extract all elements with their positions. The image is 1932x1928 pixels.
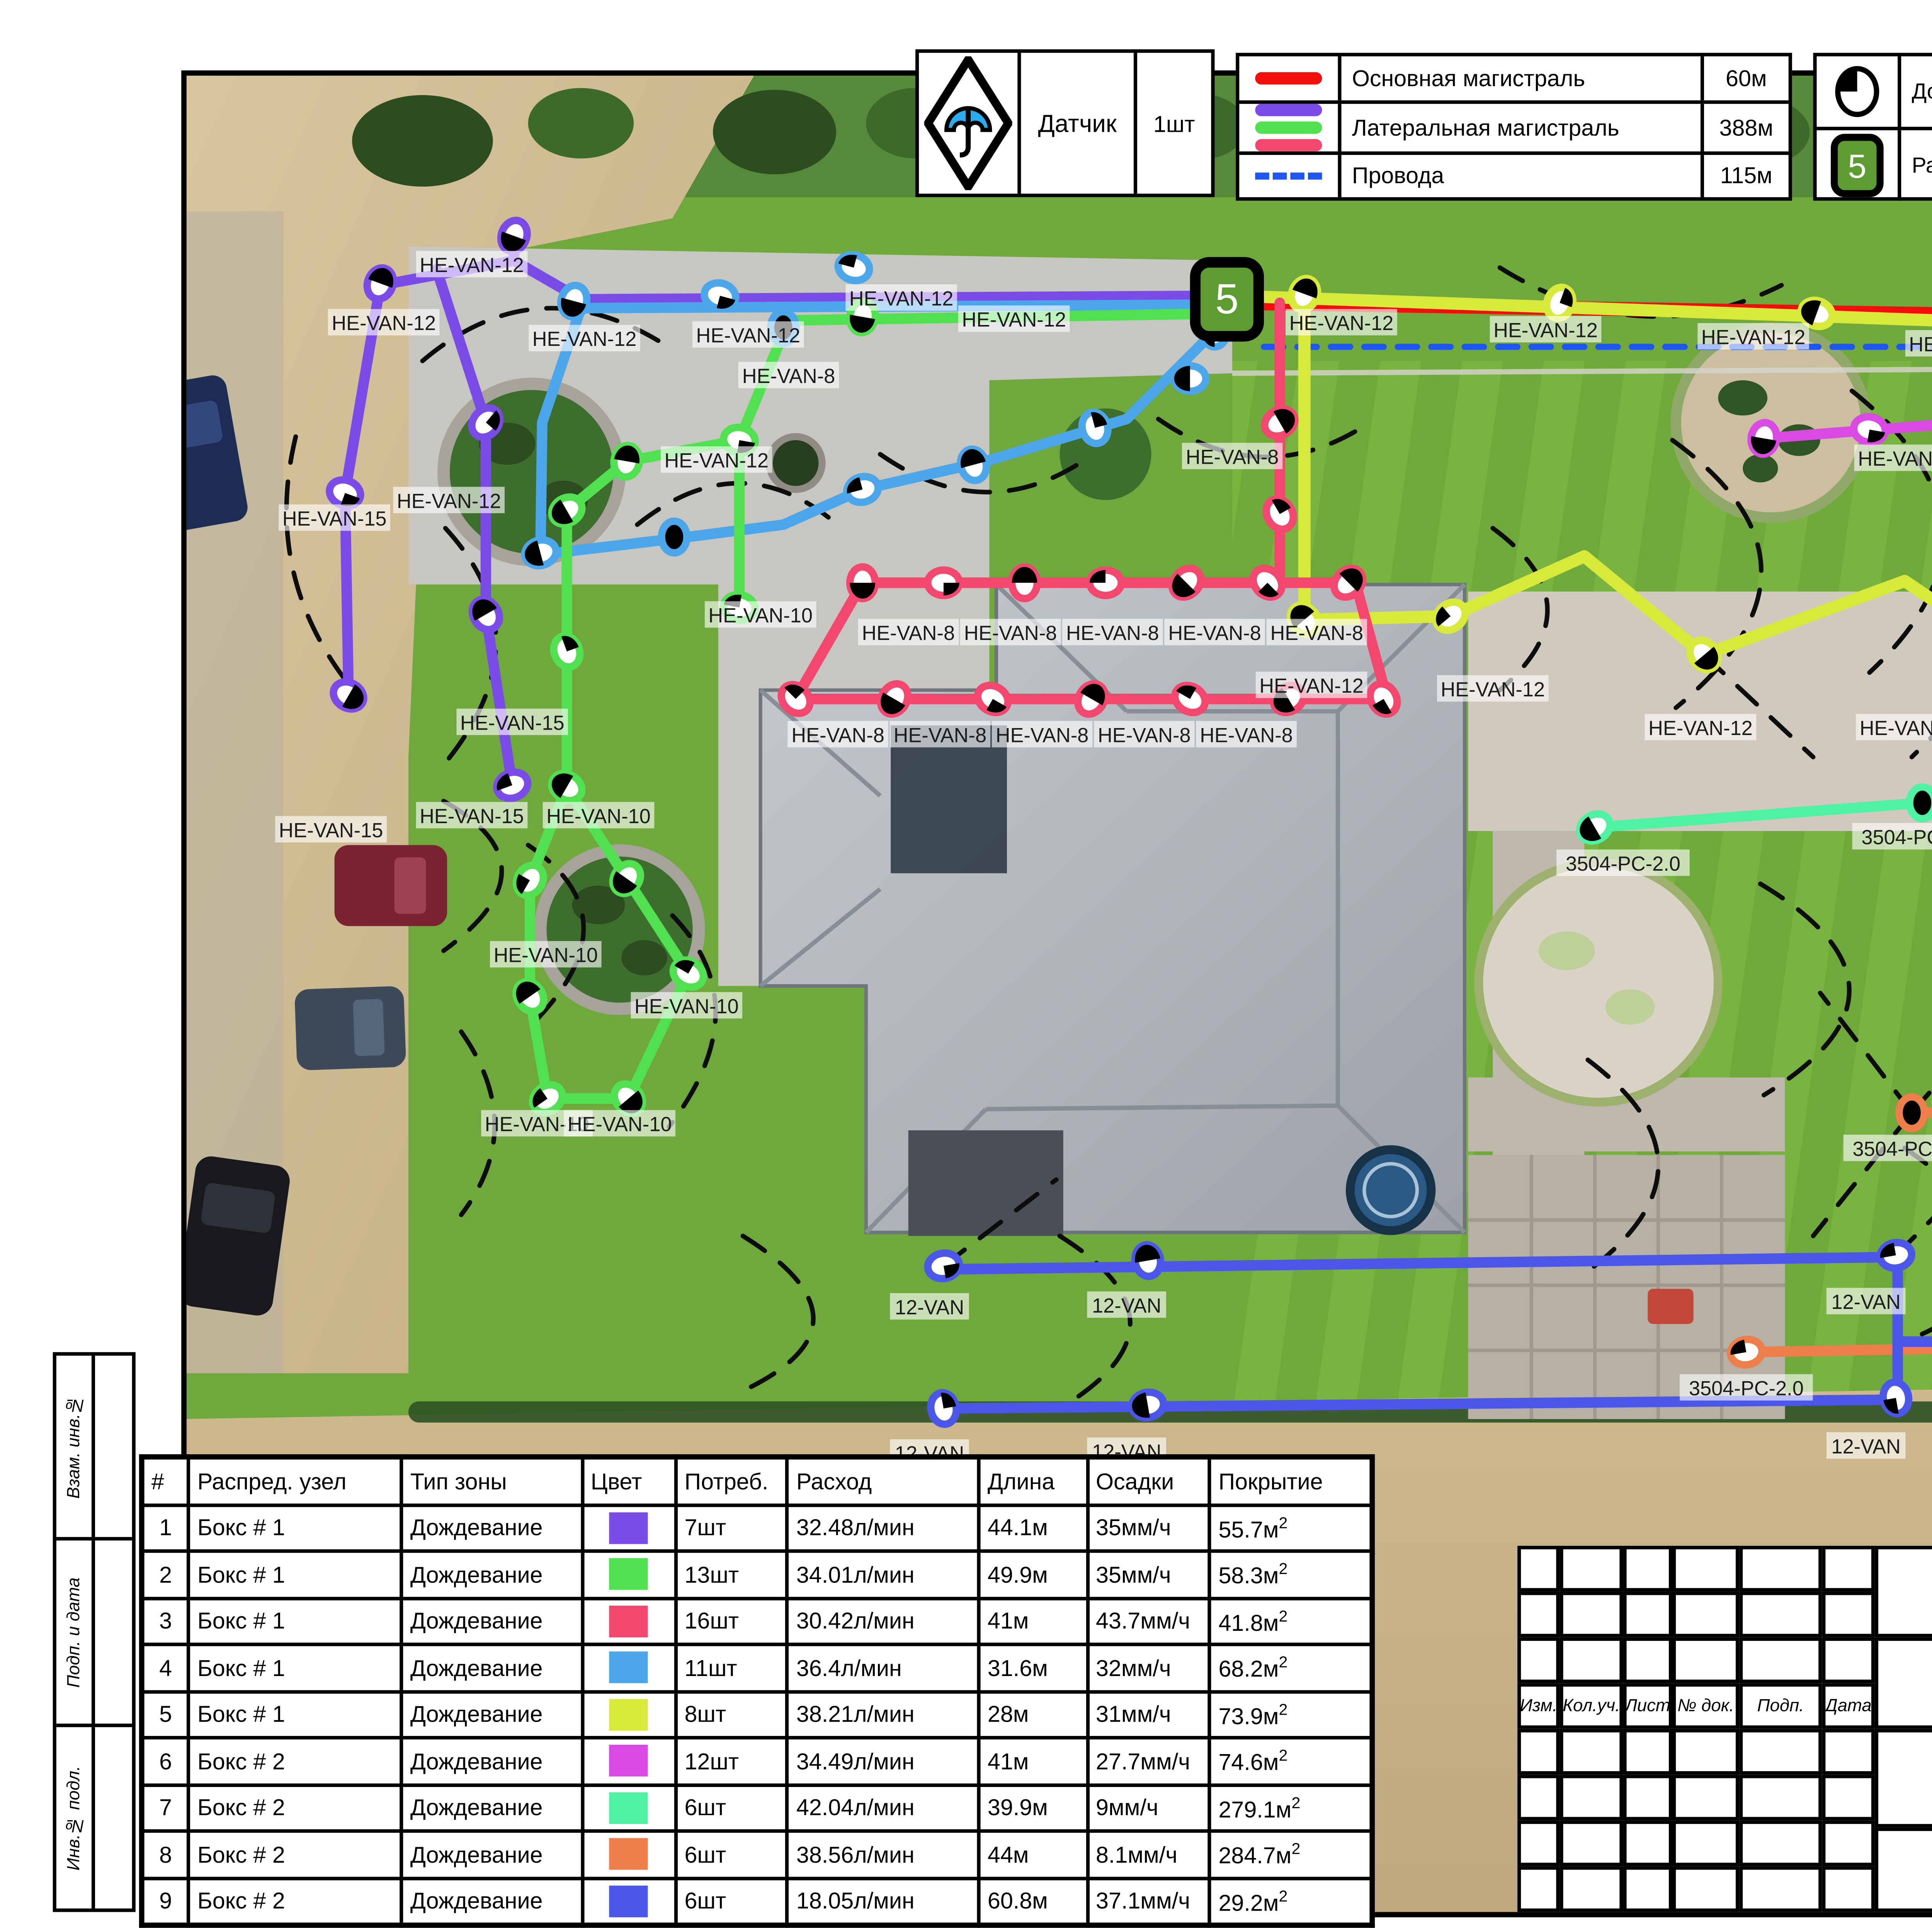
rev-grid-cell: [1822, 1591, 1875, 1637]
svg-text:HE-VAN-15: HE-VAN-15: [279, 819, 383, 842]
zone-row: 9Бокс # 2Дождевание6шт18.05л/мин60.8м37.…: [142, 1878, 1372, 1925]
plan-label: 12-VAN: [1087, 1292, 1166, 1318]
zone-node: Бокс # 2: [189, 1784, 401, 1831]
rev-grid-cell: [1560, 1637, 1623, 1683]
svg-text:HE-VAN-12: HE-VAN-12: [397, 490, 501, 512]
svg-text:HE-VAN-8: HE-VAN-8: [1066, 622, 1159, 645]
svg-text:HE-VAN-12: HE-VAN-12: [1858, 448, 1932, 470]
manifold-icon: 5: [1817, 130, 1901, 201]
zone-flow: 34.49л/мин: [787, 1738, 979, 1785]
zone-flow: 18.05л/мин: [787, 1878, 979, 1925]
svg-text:HE-VAN-8: HE-VAN-8: [1168, 622, 1261, 645]
zone-color-swatch: [609, 1605, 648, 1637]
zone-node: Бокс # 2: [189, 1831, 401, 1878]
svg-text:HE-VAN-8: HE-VAN-8: [964, 622, 1057, 645]
zone-type: Дождевание: [401, 1831, 582, 1878]
rev-grid-cell: [1560, 1775, 1623, 1820]
title-block: Изм.Кол.уч.Лист№ док.Подп.Дата№ 30.01.21…: [1517, 1546, 1932, 1912]
svg-text:HE-VAN-8: HE-VAN-8: [1270, 622, 1363, 645]
zone-number: 1: [142, 1504, 189, 1551]
zone-row: 2Бокс # 1Дождевание13шт34.01л/мин49.9м35…: [142, 1551, 1372, 1598]
svg-text:HE-VAN-12: HE-VAN-12: [962, 309, 1066, 331]
zone-color-swatch: [609, 1559, 648, 1590]
rev-grid-cell: [1822, 1821, 1875, 1866]
zone-row: 7Бокс # 2Дождевание6шт42.04л/мин39.9м9мм…: [142, 1784, 1372, 1831]
drawing-title: Общий план: [1875, 1828, 1932, 1912]
zone-heads: 12шт: [676, 1738, 787, 1785]
plan-label: 3504-PC-1.5: [1852, 823, 1932, 849]
rev-grid-cell: [1672, 1775, 1739, 1820]
zone-heads: 11шт: [676, 1644, 787, 1691]
frame-sidebar: Взам. инв.№Подп. и датаИнв.№ подл.: [53, 1352, 136, 1912]
svg-text:HE-VAN-12: HE-VAN-12: [1860, 717, 1932, 740]
zone-coverage: 73.9м2: [1210, 1691, 1372, 1738]
legend-line-row: Провода115м: [1239, 154, 1788, 197]
rev-grid-cell: [1517, 1591, 1560, 1637]
zone-length: 44.1м: [979, 1504, 1087, 1551]
zone-type: Дождевание: [401, 1738, 582, 1785]
zone-coverage: 58.3м2: [1210, 1551, 1372, 1598]
svg-text:HE-VAN-10: HE-VAN-10: [634, 995, 739, 1018]
sidebar-section: Инв.№ подл.: [56, 1727, 132, 1909]
svg-text:12-VAN: 12-VAN: [1092, 1295, 1162, 1317]
rev-grid-cell: [1517, 1821, 1560, 1866]
zone-coverage: 55.7м2: [1210, 1504, 1372, 1551]
sprinkler: [1881, 1380, 1911, 1416]
zone-color-cell: [582, 1644, 676, 1691]
rev-grid-cell: [1822, 1729, 1875, 1775]
column-header: Покрытие: [1210, 1457, 1372, 1504]
plan-label: HE-VAN-15: [279, 504, 390, 531]
zone-color-swatch: [609, 1745, 648, 1777]
rev-grid-cell: [1822, 1775, 1875, 1820]
sidebar-section: Взам. инв.№: [56, 1356, 132, 1541]
rev-col-header: Подп.: [1739, 1683, 1822, 1729]
rev-col-header: № док.: [1672, 1683, 1739, 1729]
zone-type: Дождевание: [401, 1504, 582, 1551]
zones-table: #Распред. узелТип зоныЦветПотреб.РасходД…: [139, 1454, 1375, 1928]
zone-flow: 36.4л/мин: [787, 1644, 979, 1691]
zone-number: 6: [142, 1738, 189, 1785]
zone-precip: 27.7мм/ч: [1087, 1738, 1209, 1785]
rev-grid-cell: [1739, 1821, 1822, 1866]
svg-text:HE-VAN-8: HE-VAN-8: [996, 724, 1089, 747]
doc-number: № 30.01.21: [1875, 1546, 1932, 1637]
svg-text:3504-PC-2.0: 3504-PC-2.0: [1566, 853, 1680, 875]
zone-color-cell: [582, 1691, 676, 1738]
legend-line-qty: 115м: [1701, 154, 1789, 197]
zone-length: 28м: [979, 1691, 1087, 1738]
svg-text:12-VAN: 12-VAN: [895, 1297, 964, 1319]
rev-grid-cell: [1672, 1591, 1739, 1637]
rev-grid-cell: [1560, 1591, 1623, 1637]
zone-type: Дождевание: [401, 1551, 582, 1598]
sensor-icon: [919, 53, 1021, 194]
plan-label: HE-VAN-10: [490, 941, 602, 967]
zone-color-cell: [582, 1831, 676, 1878]
plan-label: HE-VAN-12: [661, 446, 772, 473]
zone-color-swatch: [609, 1652, 648, 1683]
legend-item-row: Дождеватели85шт: [1817, 56, 1932, 130]
plan-label: HE-VAN-12: [1437, 675, 1549, 701]
svg-text:HE-VAN-10: HE-VAN-10: [493, 944, 598, 967]
zone-heads: 16шт: [676, 1598, 787, 1644]
zone-color-swatch: [609, 1512, 648, 1543]
plan-label: HE-VAN-12: [1286, 309, 1397, 335]
plan-label: HE-VAN-12: [692, 321, 804, 347]
sprinkler: [850, 567, 876, 599]
zone-color-cell: [582, 1598, 676, 1644]
zone-heads: 6шт: [676, 1878, 787, 1925]
legend-item-row: 5Распред-гребенка2шт: [1817, 130, 1932, 201]
svg-text:HE-VAN-15: HE-VAN-15: [420, 805, 524, 828]
rev-grid-cell: [1517, 1729, 1560, 1775]
svg-text:HE-VAN-12: HE-VAN-12: [1289, 312, 1394, 335]
svg-text:HE-VAN-15: HE-VAN-15: [460, 712, 565, 734]
zone-node: Бокс # 2: [189, 1738, 401, 1785]
svg-text:HE-VAN-8: HE-VAN-8: [1186, 446, 1279, 468]
rev-col-header: Кол.уч.: [1560, 1683, 1623, 1729]
sprinkler: [928, 1391, 959, 1426]
svg-text:HE-VAN-12: HE-VAN-12: [1648, 717, 1753, 740]
rev-grid-cell: [1739, 1637, 1822, 1683]
zone-color-cell: [582, 1551, 676, 1598]
rev-grid-cell: [1623, 1729, 1672, 1775]
shed-roof: [908, 1130, 1063, 1236]
rev-grid-cell: [1560, 1729, 1623, 1775]
plan-label: 3504-PC-1.5: [1844, 1135, 1932, 1161]
plan-label: HE-VAN-12: [1905, 330, 1932, 356]
zone-flow: 38.56л/мин: [787, 1831, 979, 1878]
rev-grid-cell: [1623, 1546, 1672, 1591]
zone-color-cell: [582, 1738, 676, 1785]
plan-label: HE-VAN-12: [1645, 714, 1757, 740]
legend-sensor-box: Датчик 1шт: [915, 49, 1214, 197]
zone-number: 8: [142, 1831, 189, 1878]
rev-grid-cell: [1822, 1866, 1875, 1912]
zone-precip: 32мм/ч: [1087, 1644, 1209, 1691]
zone-row: 3Бокс # 1Дождевание16шт30.42л/мин41м43.7…: [142, 1598, 1372, 1644]
sidebar-label-cell: Подп. и дата: [56, 1541, 95, 1723]
plan-label: HE-VAN-12: [1854, 444, 1932, 471]
rev-grid-cell: [1560, 1546, 1623, 1591]
svg-text:HE-VAN-8: HE-VAN-8: [791, 724, 884, 747]
rev-grid-cell: [1623, 1637, 1672, 1683]
plan-label: HE-VAN-12: [1697, 323, 1809, 349]
plan-label: HE-VAN-10: [564, 1110, 675, 1136]
svg-text:HE-VAN-12: HE-VAN-12: [1259, 675, 1364, 698]
rev-grid-cell: [1739, 1729, 1822, 1775]
zone-row: 4Бокс # 1Дождевание11шт36.4л/мин31.6м32м…: [142, 1644, 1372, 1691]
plan-label: HE-VAN-8: [1094, 721, 1195, 747]
column-header: Длина: [979, 1457, 1087, 1504]
zone-type: Дождевание: [401, 1784, 582, 1831]
table-header-row: #Распред. узелТип зоныЦветПотреб.РасходД…: [142, 1457, 1372, 1504]
rev-grid-cell: [1560, 1866, 1623, 1912]
plan-label: HE-VAN-8: [890, 721, 991, 747]
manifold-marker: 5: [1195, 262, 1259, 336]
sidebar-label-cell: Взам. инв.№: [56, 1356, 95, 1538]
rev-grid-cell: [1739, 1866, 1822, 1912]
svg-text:12-VAN: 12-VAN: [1831, 1436, 1901, 1458]
legend-line-row: Латеральная магистраль388м: [1239, 103, 1788, 154]
svg-text:HE-VAN-10: HE-VAN-10: [546, 805, 651, 828]
svg-text:HE-VAN-8: HE-VAN-8: [862, 622, 955, 645]
zone-length: 60.8м: [979, 1878, 1087, 1925]
plan-label: HE-VAN-12: [845, 284, 957, 311]
zone-precip: 43.7мм/ч: [1087, 1598, 1209, 1644]
zone-heads: 6шт: [676, 1784, 787, 1831]
zone-coverage: 284.7м2: [1210, 1831, 1372, 1878]
sprinkler: [1174, 366, 1206, 391]
zone-row: 5Бокс # 1Дождевание8шт38.21л/мин28м31мм/…: [142, 1691, 1372, 1738]
zone-precip: 35мм/ч: [1087, 1504, 1209, 1551]
zone-precip: 37.1мм/ч: [1087, 1878, 1209, 1925]
zone-node: Бокс # 1: [189, 1691, 401, 1738]
sprinkler: [1728, 1337, 1764, 1367]
sprinkler: [1878, 1240, 1914, 1271]
legend-line-label: Провода: [1342, 154, 1701, 197]
zone-number: 3: [142, 1598, 189, 1644]
svg-text:HE-VAN-10: HE-VAN-10: [708, 604, 813, 627]
sidebar-label-cell: Инв.№ подл.: [56, 1727, 95, 1909]
rev-grid-cell: [1517, 1546, 1560, 1591]
rev-col-header: Дата: [1822, 1683, 1875, 1729]
zone-coverage: 29.2м2: [1210, 1878, 1372, 1925]
zone-color-swatch: [609, 1698, 648, 1730]
zone-length: 39.9м: [979, 1784, 1087, 1831]
rev-grid-cell: [1739, 1775, 1822, 1820]
sprinkler: [928, 570, 959, 596]
object-name: Поповичи: [1875, 1637, 1932, 1729]
plan-label: HE-VAN-10: [543, 802, 655, 828]
zone-type: Дождевание: [401, 1598, 582, 1644]
project-title: Система автополива: [1875, 1729, 1932, 1828]
svg-text:HE-VAN-15: HE-VAN-15: [282, 508, 387, 530]
plan-label: HE-VAN-15: [416, 802, 528, 828]
rev-grid-cell: [1517, 1637, 1560, 1683]
rev-grid-cell: [1560, 1821, 1623, 1866]
legend-item-label: Дождеватели: [1901, 56, 1932, 127]
plan-label: HE-VAN-8: [787, 721, 888, 747]
svg-text:HE-VAN-12: HE-VAN-12: [1440, 679, 1545, 701]
zone-flow: 34.01л/мин: [787, 1551, 979, 1598]
sidebar-label: Инв.№ подл.: [64, 1765, 83, 1870]
sidebar-label: Взам. инв.№: [64, 1394, 83, 1499]
plan-label: HE-VAN-12: [1856, 714, 1932, 740]
zone-node: Бокс # 2: [189, 1878, 401, 1925]
garden-circle: [444, 384, 620, 560]
plan-label: HE-VAN-8: [992, 721, 1093, 747]
drawing-sheet: FIXEDK54 HE-VAN-12HE-VAN-12HE-VAN-12HE-V…: [0, 0, 1932, 1916]
svg-text:HE-VAN-8: HE-VAN-8: [1200, 724, 1293, 747]
rev-col-header: Изм.: [1517, 1683, 1560, 1729]
zone-heads: 13шт: [676, 1551, 787, 1598]
zone-length: 41м: [979, 1598, 1087, 1644]
svg-text:HE-VAN-12: HE-VAN-12: [332, 312, 436, 335]
rev-grid-cell: [1623, 1821, 1672, 1866]
plan-label: 12-VAN: [1827, 1288, 1906, 1314]
zone-node: Бокс # 1: [189, 1551, 401, 1598]
rev-grid-cell: [1672, 1546, 1739, 1591]
zone-length: 49.9м: [979, 1551, 1087, 1598]
svg-text:5: 5: [1848, 148, 1866, 185]
plan-label: HE-VAN-8: [1266, 619, 1367, 645]
sensor-qty: 1шт: [1134, 53, 1211, 194]
legend-line-qty: 60м: [1701, 56, 1789, 100]
plan-label: HE-VAN-8: [1164, 619, 1265, 645]
zone-coverage: 279.1м2: [1210, 1784, 1372, 1831]
svg-text:HE-VAN-12: HE-VAN-12: [532, 328, 637, 351]
svg-text:HE-VAN-12: HE-VAN-12: [1909, 334, 1932, 356]
column-header: Тип зоны: [401, 1457, 582, 1504]
sprinkler: [926, 1251, 961, 1281]
plan-label: HE-VAN-12: [1256, 672, 1367, 698]
zone-flow: 30.42л/мин: [787, 1598, 979, 1644]
plan-label: HE-VAN-10: [705, 601, 816, 628]
rev-grid-cell: [1517, 1866, 1560, 1912]
sprinkler: [611, 444, 642, 479]
svg-text:HE-VAN-8: HE-VAN-8: [1098, 724, 1191, 747]
svg-text:3504-PC-1.5: 3504-PC-1.5: [1853, 1138, 1932, 1161]
sprinkler: [1910, 787, 1932, 819]
zone-length: 31.6м: [979, 1644, 1087, 1691]
plan-label: HE-VAN-8: [1062, 619, 1163, 645]
zone-precip: 8.1мм/ч: [1087, 1831, 1209, 1878]
zone-coverage: 74.6м2: [1210, 1738, 1372, 1785]
legend-item-label: Распред-гребенка: [1901, 130, 1932, 201]
legend-line-qty: 388м: [1701, 103, 1789, 151]
plan-label: HE-VAN-12: [328, 309, 440, 335]
plan-label: HE-VAN-12: [529, 325, 640, 351]
plan-label: HE-VAN-8: [858, 619, 959, 645]
zone-node: Бокс # 1: [189, 1598, 401, 1644]
zone-length: 41м: [979, 1738, 1087, 1785]
zone-row: 8Бокс # 2Дождевание6шт38.56л/мин44м8.1мм…: [142, 1831, 1372, 1878]
zone-number: 9: [142, 1878, 189, 1925]
rev-grid-cell: [1822, 1546, 1875, 1591]
rev-col-header: Лист: [1623, 1683, 1672, 1729]
svg-text:3504-PC-1.5: 3504-PC-1.5: [1861, 827, 1932, 849]
rev-grid-cell: [1739, 1546, 1822, 1591]
zone-color-cell: [582, 1784, 676, 1831]
rev-grid-cell: [1672, 1637, 1739, 1683]
column-header: Потреб.: [676, 1457, 787, 1504]
zone-number: 2: [142, 1551, 189, 1598]
rev-grid-cell: [1517, 1775, 1560, 1820]
plan-label: 3504-PC-2.0: [1680, 1374, 1813, 1400]
zone-color-swatch: [609, 1792, 648, 1824]
plan-label: HE-VAN-8: [1182, 443, 1283, 469]
sprinkler-icon: [1817, 56, 1901, 127]
sidebar-section: Подп. и дата: [56, 1541, 132, 1727]
plan-label: HE-VAN-12: [416, 251, 528, 277]
rev-grid-cell: [1623, 1866, 1672, 1912]
zone-type: Дождевание: [401, 1644, 582, 1691]
zone-color-cell: [582, 1504, 676, 1551]
zone-heads: 7шт: [676, 1504, 787, 1551]
zone-precip: 31мм/ч: [1087, 1691, 1209, 1738]
svg-text:12-VAN: 12-VAN: [1831, 1291, 1901, 1314]
solar-panels: [891, 725, 1007, 873]
zone-type: Дождевание: [401, 1691, 582, 1738]
sprinkler: [1130, 1390, 1165, 1420]
zone-flow: 38.21л/мин: [787, 1691, 979, 1738]
zone-row: 1Бокс # 1Дождевание7шт32.48л/мин44.1м35м…: [142, 1504, 1372, 1551]
plan-label: 12-VAN: [1827, 1432, 1906, 1458]
playhouse: [1648, 1289, 1693, 1324]
plan-label: HE-VAN-12: [958, 305, 1070, 332]
svg-text:HE-VAN-12: HE-VAN-12: [420, 254, 524, 277]
legend-line-label: Латеральная магистраль: [1342, 103, 1701, 151]
zone-coverage: 68.2м2: [1210, 1644, 1372, 1691]
column-header: Расход: [787, 1457, 979, 1504]
plan-label: 3504-PC-2.0: [1556, 849, 1690, 876]
trampoline: [1350, 1150, 1431, 1231]
sensor-label: Датчик: [1021, 53, 1134, 194]
plan-label: HE-VAN-8: [1196, 721, 1297, 747]
zone-precip: 35мм/ч: [1087, 1551, 1209, 1598]
zone-row: 6Бокс # 2Дождевание12шт34.49л/мин41м27.7…: [142, 1738, 1372, 1785]
zone-type: Дождевание: [401, 1878, 582, 1925]
zone-flow: 42.04л/мин: [787, 1784, 979, 1831]
zone-number: 5: [142, 1691, 189, 1738]
zone-heads: 8шт: [676, 1691, 787, 1738]
legend-items-box-1: Дождеватели85шт5Распред-гребенка2шт: [1813, 53, 1932, 201]
zone-color-swatch: [609, 1838, 648, 1870]
zone-precip: 9мм/ч: [1087, 1784, 1209, 1831]
sprinkler: [1012, 567, 1037, 599]
rev-grid-cell: [1623, 1591, 1672, 1637]
sprinkler: [1748, 420, 1779, 456]
plan-label: 12-VAN: [890, 1293, 969, 1319]
legend-lines-box: Основная магистраль60мЛатеральная магист…: [1236, 53, 1792, 201]
legend-line-label: Основная магистраль: [1342, 56, 1701, 100]
zone-length: 44м: [979, 1831, 1087, 1878]
plan-label: HE-VAN-15: [456, 709, 568, 735]
sprinkler: [1852, 414, 1887, 445]
svg-text:HE-VAN-12: HE-VAN-12: [1701, 327, 1806, 349]
svg-text:3504-PC-2.0: 3504-PC-2.0: [1689, 1377, 1804, 1400]
plan-label: HE-VAN-12: [393, 487, 505, 513]
rev-grid-cell: [1739, 1591, 1822, 1637]
zone-number: 7: [142, 1784, 189, 1831]
car-gray: [294, 986, 406, 1070]
rev-grid-cell: [1672, 1729, 1739, 1775]
rev-grid-cell: [1822, 1637, 1875, 1683]
zone-coverage: 41.8м2: [1210, 1598, 1372, 1644]
rev-grid-cell: [1672, 1821, 1739, 1866]
legend-line-row: Основная магистраль60м: [1239, 56, 1788, 103]
zone-node: Бокс # 1: [189, 1644, 401, 1691]
plan-label: HE-VAN-12: [1490, 316, 1602, 342]
zone-color-cell: [582, 1878, 676, 1925]
column-header: Цвет: [582, 1457, 676, 1504]
sprinkler: [662, 521, 687, 553]
svg-text:HE-VAN-12: HE-VAN-12: [696, 325, 800, 347]
svg-text:HE-VAN-10: HE-VAN-10: [568, 1113, 672, 1136]
sprinkler: [1133, 1243, 1163, 1278]
column-header: Осадки: [1087, 1457, 1209, 1504]
sidebar-label: Подп. и дата: [64, 1577, 83, 1687]
zone-heads: 6шт: [676, 1831, 787, 1878]
svg-text:HE-VAN-8: HE-VAN-8: [742, 365, 835, 388]
column-header: Распред. узел: [189, 1457, 401, 1504]
zone-number: 4: [142, 1644, 189, 1691]
svg-text:HE-VAN-12: HE-VAN-12: [664, 450, 769, 472]
sprinkler: [1899, 1097, 1925, 1128]
zone-node: Бокс # 1: [189, 1504, 401, 1551]
